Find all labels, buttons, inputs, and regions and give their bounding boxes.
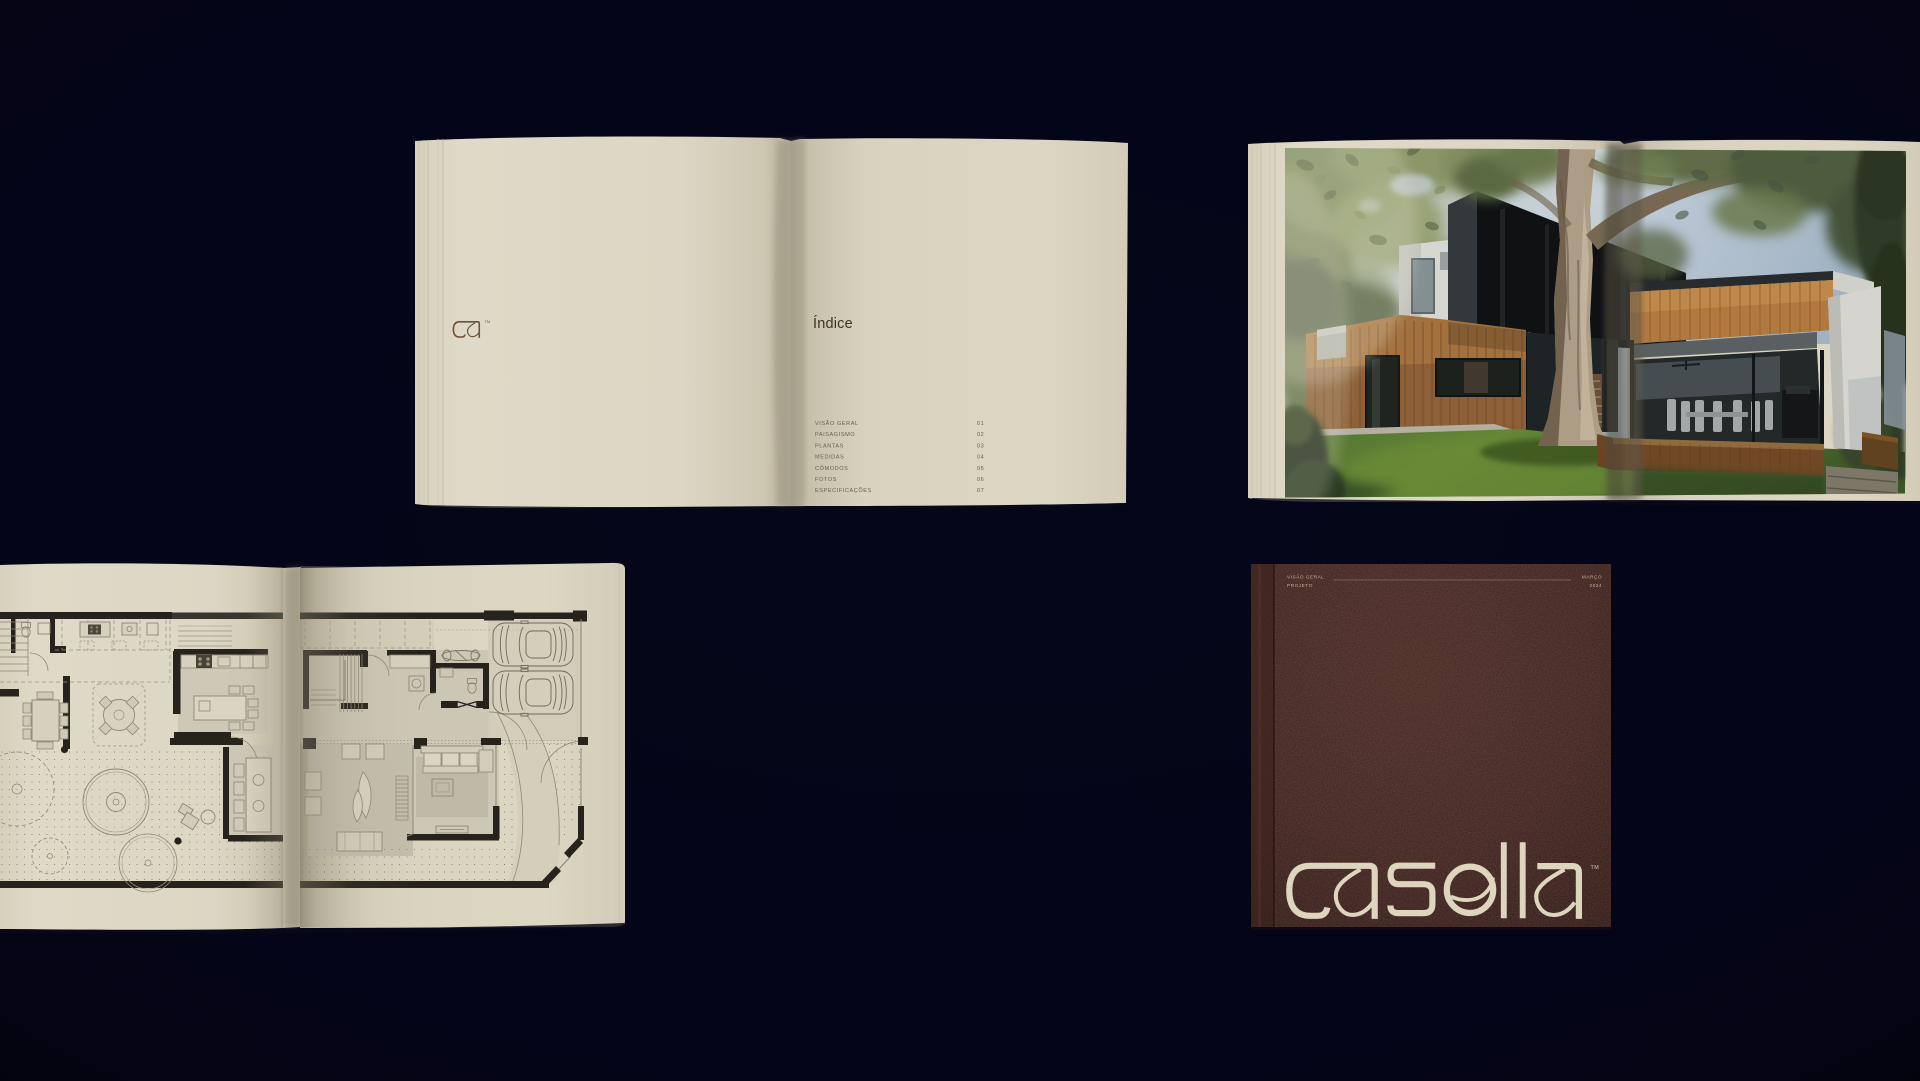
svg-text:FOTOS: FOTOS bbox=[815, 477, 837, 483]
svg-text:01: 01 bbox=[977, 421, 984, 427]
svg-text:04: 04 bbox=[977, 455, 984, 461]
svg-text:07: 07 bbox=[977, 488, 984, 494]
svg-text:TM: TM bbox=[1591, 865, 1600, 871]
svg-text:Índice: Índice bbox=[813, 315, 853, 332]
svg-text:CÔMODOS: CÔMODOS bbox=[815, 465, 848, 472]
svg-text:PLANTAS: PLANTAS bbox=[815, 443, 844, 449]
svg-text:MEDIDAS: MEDIDAS bbox=[815, 455, 844, 461]
svg-text:2024: 2024 bbox=[1590, 583, 1602, 589]
svg-text:TM: TM bbox=[485, 320, 490, 324]
svg-text:02: 02 bbox=[977, 432, 984, 438]
svg-text:PROJETO: PROJETO bbox=[1287, 583, 1313, 589]
svg-text:05: 05 bbox=[977, 466, 984, 472]
svg-text:03: 03 bbox=[977, 443, 984, 449]
svg-text:VISÃO GERAL: VISÃO GERAL bbox=[815, 420, 859, 427]
svg-text:PAISAGISMO: PAISAGISMO bbox=[815, 432, 855, 438]
svg-text:VISÃO GERAL: VISÃO GERAL bbox=[1287, 574, 1324, 581]
svg-text:06: 06 bbox=[977, 477, 984, 483]
svg-text:MARÇO: MARÇO bbox=[1582, 575, 1602, 581]
svg-text:ESPECIFICAÇÕES: ESPECIFICAÇÕES bbox=[815, 487, 872, 494]
